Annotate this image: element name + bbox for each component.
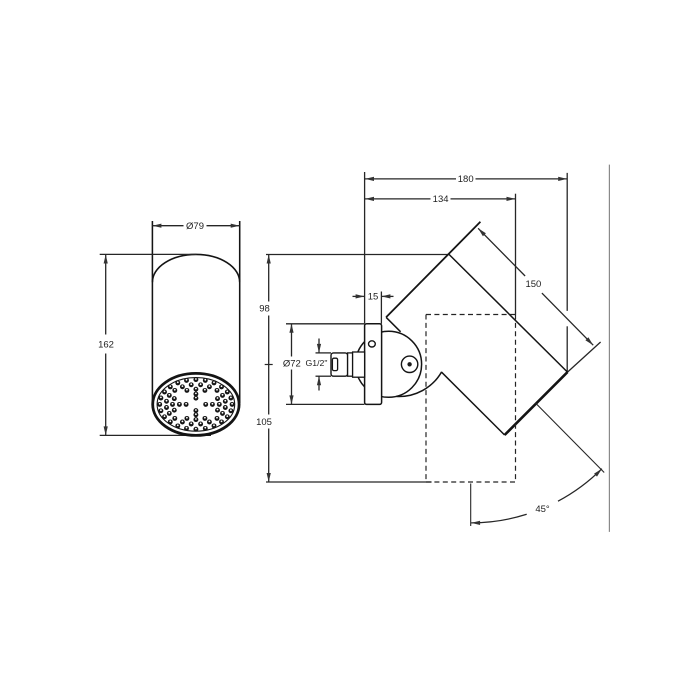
svg-text:162: 162 [98, 340, 114, 351]
svg-text:45°: 45° [535, 504, 550, 515]
svg-text:150: 150 [525, 279, 541, 290]
svg-text:98: 98 [259, 304, 270, 315]
svg-text:Ø79: Ø79 [186, 221, 204, 232]
svg-text:180: 180 [458, 174, 474, 185]
svg-text:Ø72: Ø72 [283, 358, 301, 369]
svg-text:15: 15 [368, 292, 379, 303]
svg-text:134: 134 [433, 194, 449, 205]
svg-text:G1/2": G1/2" [306, 358, 328, 368]
svg-text:105: 105 [256, 417, 272, 428]
